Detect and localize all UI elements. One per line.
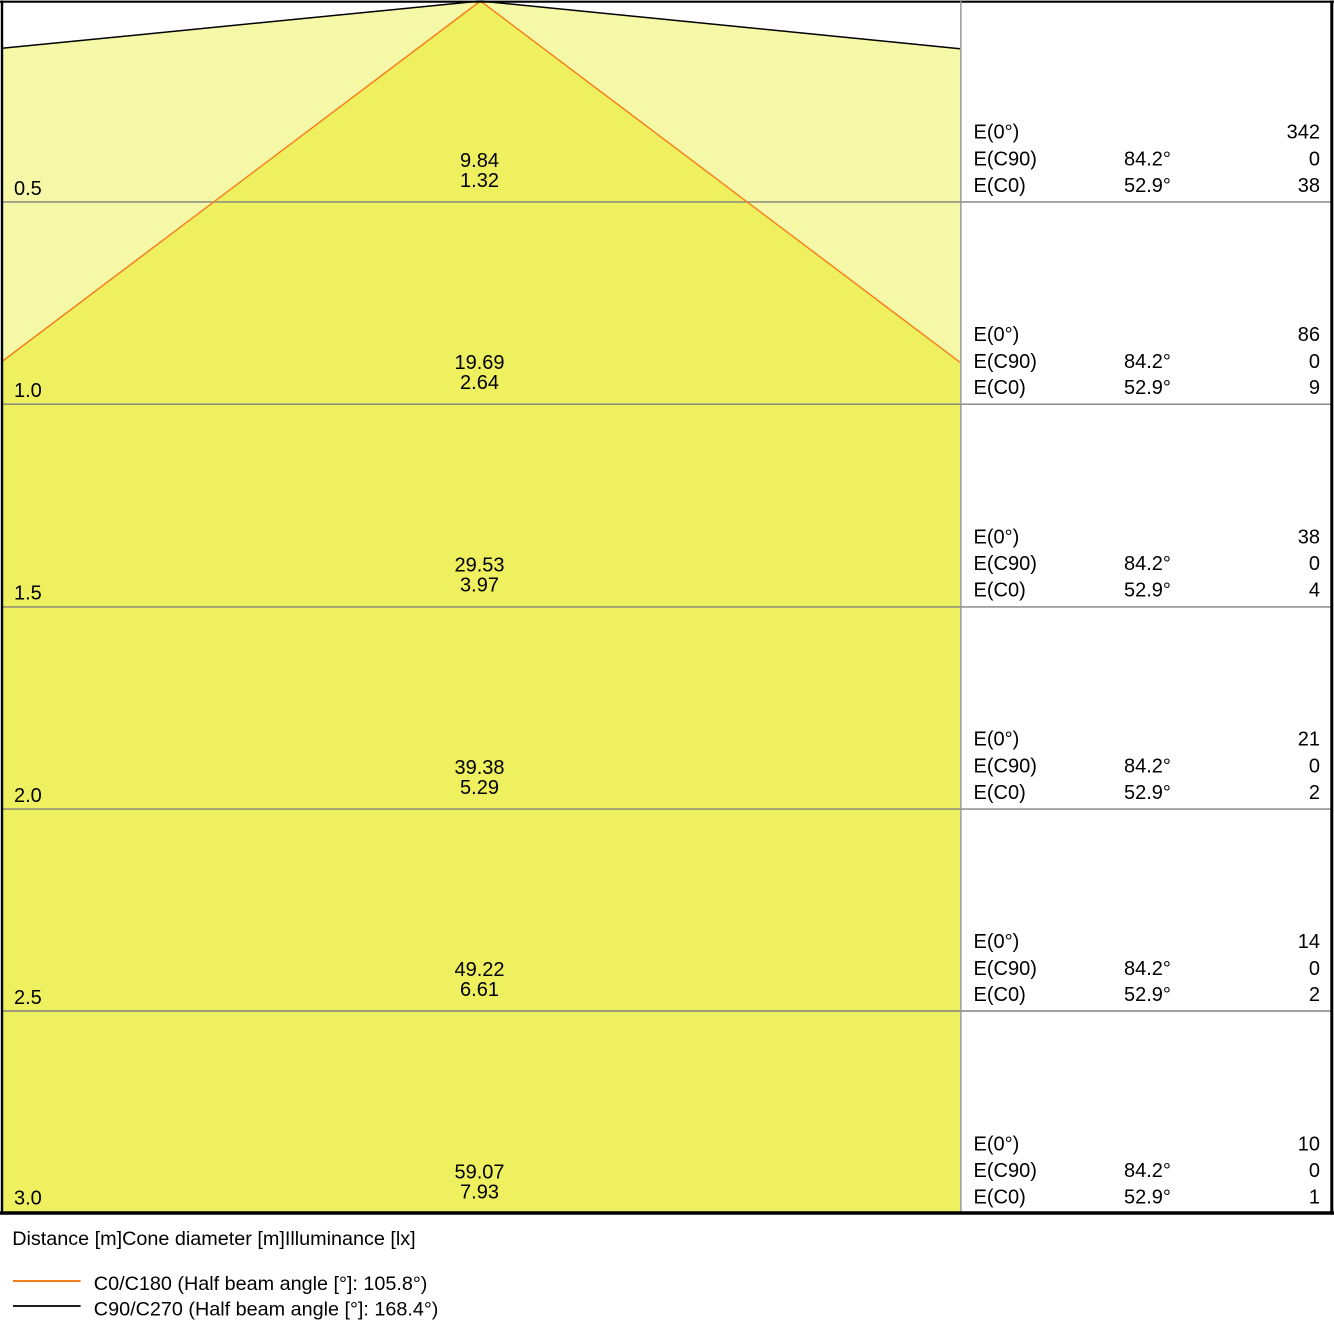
svg-text:52.9°: 52.9° [1124, 377, 1171, 399]
svg-text:0.5: 0.5 [14, 178, 42, 200]
svg-text:52.9°: 52.9° [1124, 984, 1171, 1006]
svg-text:1.32: 1.32 [460, 170, 499, 192]
svg-text:10: 10 [1298, 1133, 1320, 1155]
svg-text:1: 1 [1309, 1187, 1320, 1209]
svg-text:0: 0 [1309, 351, 1320, 373]
svg-text:4: 4 [1309, 580, 1320, 602]
svg-text:9.84: 9.84 [460, 150, 499, 172]
svg-text:1.0: 1.0 [14, 380, 42, 402]
svg-text:2.64: 2.64 [460, 372, 499, 394]
svg-text:52.9°: 52.9° [1124, 782, 1171, 804]
svg-text:E(C90): E(C90) [974, 553, 1037, 575]
svg-text:E(C0): E(C0) [974, 782, 1026, 804]
svg-text:49.22: 49.22 [454, 959, 504, 981]
svg-text:E(0°): E(0°) [974, 526, 1020, 548]
svg-text:84.2°: 84.2° [1124, 958, 1171, 980]
svg-text:2.5: 2.5 [14, 987, 42, 1009]
svg-text:0: 0 [1309, 149, 1320, 171]
svg-text:Distance [m]Cone diameter [m]I: Distance [m]Cone diameter [m]Illuminance… [12, 1228, 415, 1250]
svg-text:C0/C180 (Half beam angle [°]:: C0/C180 (Half beam angle [°]: 105.8°) [94, 1273, 428, 1295]
svg-text:E(0°): E(0°) [974, 324, 1020, 346]
svg-text:E(C90): E(C90) [974, 1160, 1037, 1182]
svg-text:84.2°: 84.2° [1124, 149, 1171, 171]
svg-text:19.69: 19.69 [454, 352, 504, 374]
svg-text:1.5: 1.5 [14, 582, 42, 604]
svg-text:342: 342 [1287, 122, 1320, 144]
svg-text:E(C0): E(C0) [974, 580, 1026, 602]
svg-text:84.2°: 84.2° [1124, 351, 1171, 373]
svg-text:52.9°: 52.9° [1124, 1187, 1171, 1209]
svg-text:E(C90): E(C90) [974, 958, 1037, 980]
svg-text:52.9°: 52.9° [1124, 175, 1171, 197]
svg-text:E(C0): E(C0) [974, 984, 1026, 1006]
svg-text:14: 14 [1298, 931, 1320, 953]
svg-text:E(0°): E(0°) [974, 931, 1020, 953]
svg-text:39.38: 39.38 [454, 757, 504, 779]
svg-text:21: 21 [1298, 729, 1320, 751]
svg-text:0: 0 [1309, 756, 1320, 778]
svg-text:E(0°): E(0°) [974, 1133, 1020, 1155]
svg-text:7.93: 7.93 [460, 1181, 499, 1203]
svg-text:3.97: 3.97 [460, 574, 499, 596]
svg-text:38: 38 [1298, 175, 1320, 197]
svg-text:E(C90): E(C90) [974, 756, 1037, 778]
svg-text:84.2°: 84.2° [1124, 756, 1171, 778]
svg-text:38: 38 [1298, 526, 1320, 548]
svg-text:E(0°): E(0°) [974, 122, 1020, 144]
svg-text:E(C0): E(C0) [974, 377, 1026, 399]
svg-text:6.61: 6.61 [460, 979, 499, 1001]
svg-text:52.9°: 52.9° [1124, 580, 1171, 602]
svg-text:3.0: 3.0 [14, 1187, 42, 1209]
svg-text:E(C90): E(C90) [974, 149, 1037, 171]
svg-text:E(C0): E(C0) [974, 175, 1026, 197]
svg-text:29.53: 29.53 [454, 554, 504, 576]
svg-text:0: 0 [1309, 1160, 1320, 1182]
svg-text:9: 9 [1309, 377, 1320, 399]
svg-text:2.0: 2.0 [14, 785, 42, 807]
svg-text:0: 0 [1309, 553, 1320, 575]
svg-text:0: 0 [1309, 958, 1320, 980]
svg-text:E(C90): E(C90) [974, 351, 1037, 373]
svg-text:84.2°: 84.2° [1124, 1160, 1171, 1182]
svg-text:5.29: 5.29 [460, 777, 499, 799]
svg-text:C90/C270 (Half beam angle [°]:: C90/C270 (Half beam angle [°]: 168.4°) [94, 1299, 439, 1321]
svg-text:E(0°): E(0°) [974, 729, 1020, 751]
svg-text:84.2°: 84.2° [1124, 553, 1171, 575]
svg-text:59.07: 59.07 [454, 1161, 504, 1183]
svg-text:E(C0): E(C0) [974, 1187, 1026, 1209]
svg-text:2: 2 [1309, 984, 1320, 1006]
svg-text:86: 86 [1298, 324, 1320, 346]
svg-text:2: 2 [1309, 782, 1320, 804]
